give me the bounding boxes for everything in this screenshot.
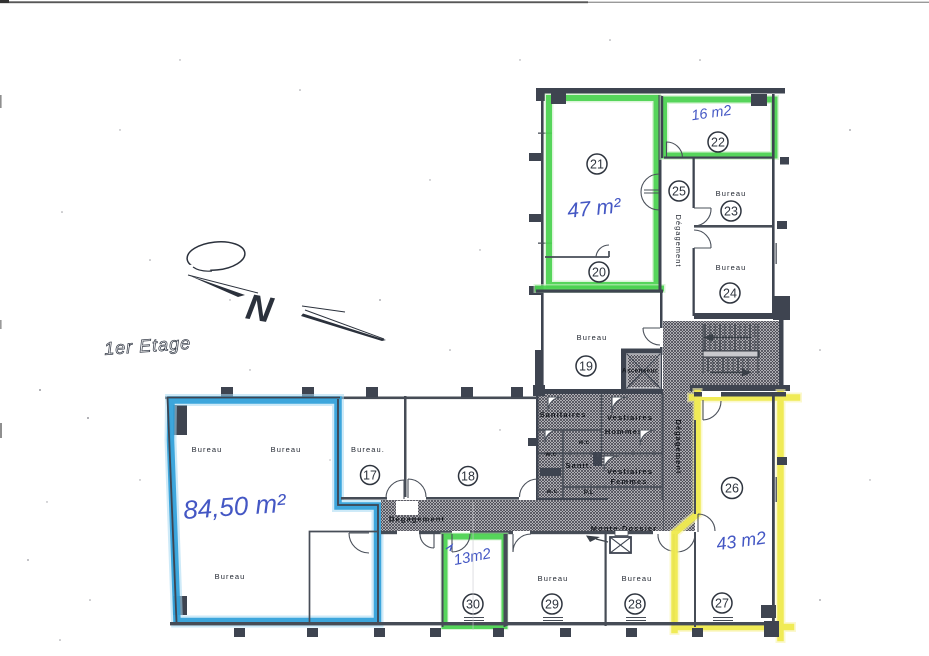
svg-text:Vestiaires: Vestiaires bbox=[607, 467, 653, 476]
svg-text:Hommes: Hommes bbox=[605, 427, 643, 436]
svg-text:Bureau: Bureau bbox=[192, 445, 223, 454]
svg-text:w.c: w.c bbox=[577, 439, 589, 446]
svg-text:24: 24 bbox=[723, 287, 737, 301]
svg-text:P.L: P.L bbox=[584, 489, 594, 496]
svg-text:Sanitaires: Sanitaires bbox=[540, 410, 587, 419]
svg-text:23: 23 bbox=[724, 205, 738, 219]
svg-text:26: 26 bbox=[725, 482, 739, 496]
svg-text:Bureau: Bureau bbox=[716, 189, 747, 198]
svg-text:Dégagement: Dégagement bbox=[674, 215, 683, 268]
svg-text:Bureau.: Bureau. bbox=[351, 445, 385, 454]
svg-text:27: 27 bbox=[715, 597, 729, 611]
svg-text:Femmes: Femmes bbox=[610, 477, 647, 486]
svg-text:29: 29 bbox=[545, 598, 559, 612]
svg-text:Bureau: Bureau bbox=[577, 333, 608, 342]
svg-text:28: 28 bbox=[628, 598, 642, 612]
svg-text:Bureau: Bureau bbox=[538, 574, 569, 583]
svg-text:Bureau: Bureau bbox=[716, 263, 747, 272]
svg-text:Sanit.: Sanit. bbox=[565, 461, 592, 470]
svg-text:17: 17 bbox=[363, 469, 377, 483]
svg-text:18: 18 bbox=[461, 470, 475, 484]
svg-text:Dégagement: Dégagement bbox=[674, 419, 683, 474]
svg-text:22: 22 bbox=[711, 136, 725, 150]
svg-text:Dégagement: Dégagement bbox=[389, 515, 445, 524]
svg-text:w.c: w.c bbox=[545, 488, 557, 495]
svg-text:19: 19 bbox=[579, 360, 593, 374]
svg-text:Ascenseur: Ascenseur bbox=[622, 368, 658, 375]
svg-text:w.c: w.c bbox=[544, 451, 556, 458]
svg-text:Vestiaires: Vestiaires bbox=[607, 413, 653, 422]
svg-text:Bureau: Bureau bbox=[215, 572, 246, 581]
svg-text:20: 20 bbox=[592, 266, 606, 280]
svg-text:21: 21 bbox=[590, 158, 604, 172]
svg-text:Bureau: Bureau bbox=[622, 574, 653, 583]
svg-text:Bureau: Bureau bbox=[271, 445, 302, 454]
svg-text:25: 25 bbox=[672, 185, 686, 199]
